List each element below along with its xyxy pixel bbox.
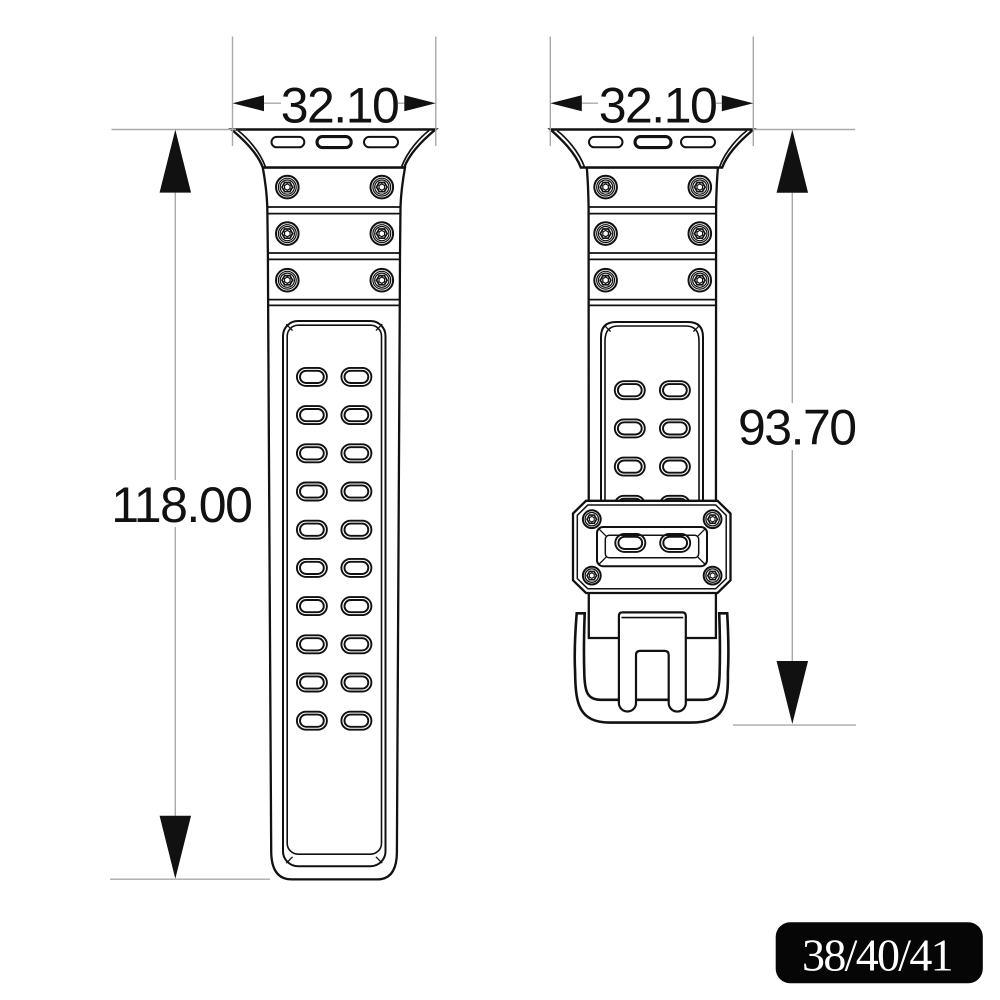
svg-text:38/40/41: 38/40/41 xyxy=(802,930,952,981)
svg-text:32.10: 32.10 xyxy=(599,78,717,134)
svg-text:32.10: 32.10 xyxy=(281,78,399,134)
svg-text:93.70: 93.70 xyxy=(738,400,856,456)
svg-text:118.00: 118.00 xyxy=(111,477,251,533)
